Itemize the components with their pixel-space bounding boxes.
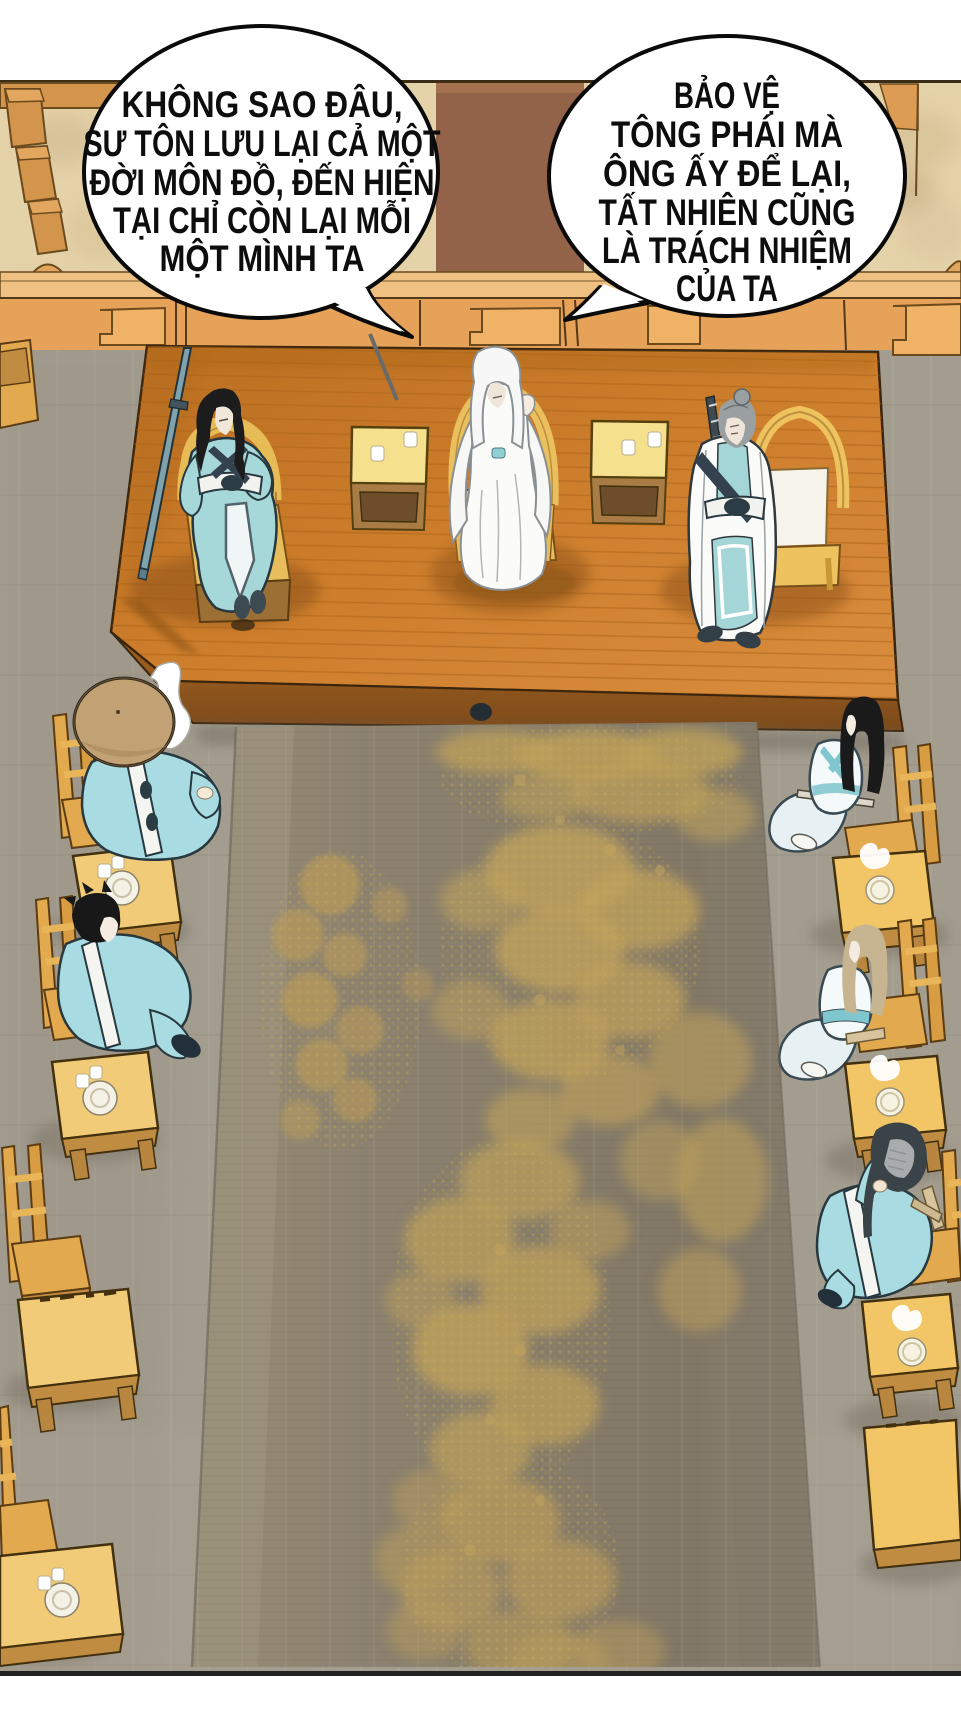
svg-text:BẢO VỆ: BẢO VỆ: [674, 74, 780, 116]
svg-text:MỘT MÌNH TA: MỘT MÌNH TA: [160, 237, 365, 279]
svg-text:CỦA TA: CỦA TA: [676, 267, 778, 309]
svg-text:SƯ TÔN LƯU LẠI CẢ MỘT: SƯ TÔN LƯU LẠI CẢ MỘT: [84, 122, 441, 164]
svg-text:KHÔNG SAO ĐÂU,: KHÔNG SAO ĐÂU,: [122, 83, 403, 125]
svg-text:TẠI CHỈ CÒN LẠI MỖI: TẠI CHỈ CÒN LẠI MỖI: [113, 199, 411, 241]
svg-text:TẤT NHIÊN CŨNG: TẤT NHIÊN CŨNG: [599, 191, 856, 233]
svg-text:ÔNG ẤY ĐỂ LẠI,: ÔNG ẤY ĐỂ LẠI,: [603, 152, 851, 194]
svg-text:TÔNG PHÁI MÀ: TÔNG PHÁI MÀ: [611, 113, 843, 155]
svg-text:LÀ TRÁCH NHIỆM: LÀ TRÁCH NHIỆM: [602, 229, 852, 271]
svg-text:ĐỜI MÔN ĐỒ, ĐẾN HIỆN: ĐỜI MÔN ĐỒ, ĐẾN HIỆN: [90, 161, 435, 203]
